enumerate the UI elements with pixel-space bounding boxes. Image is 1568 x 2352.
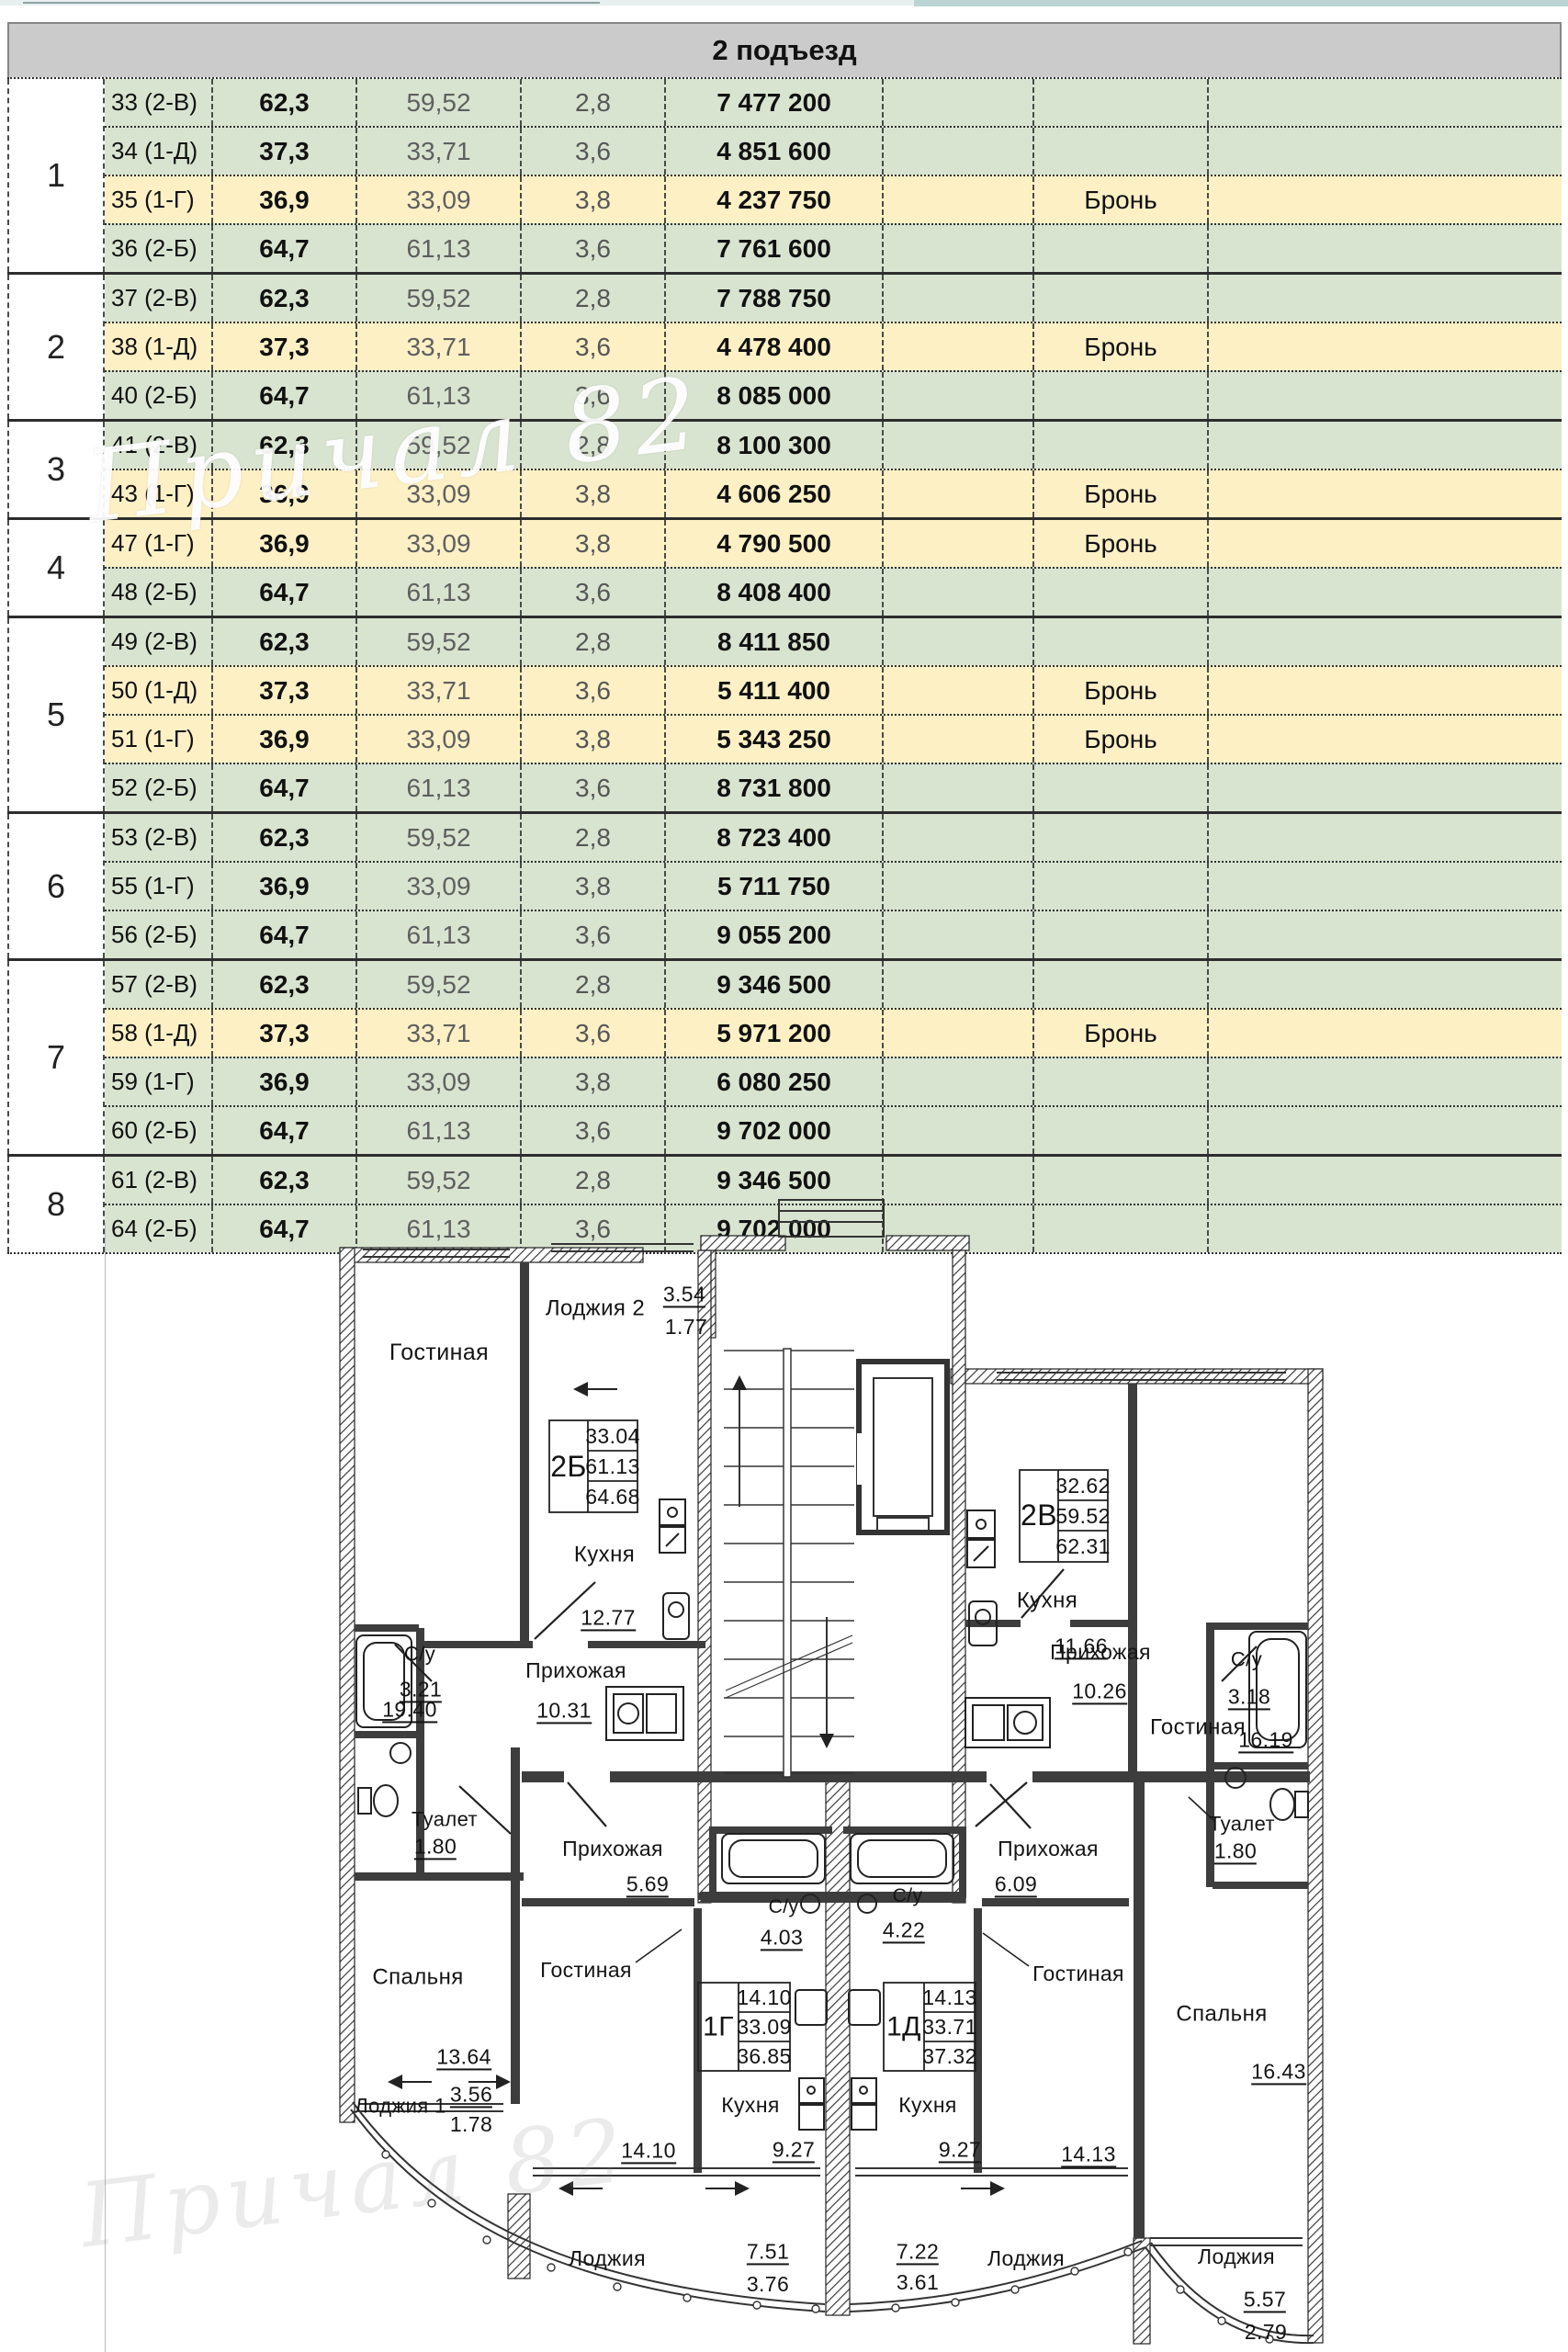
dim-loggia2-a: 3.54: [663, 1283, 705, 1307]
unit-2b-area1: 33.04: [585, 1425, 640, 1447]
dim-bath-1d: 4.22: [883, 1918, 925, 1943]
dim-loggia1-b: 1.78: [450, 2113, 492, 2135]
unit-1d-area2: 33.71: [922, 2016, 977, 2038]
room-wc-2b: Туалет: [412, 1808, 478, 1829]
dim-loggia-1d-a: 7.22: [897, 2240, 939, 2265]
unit-1g-code: 1Г: [703, 2012, 734, 2041]
unit-2v-area3: 62.31: [1055, 1535, 1111, 1557]
dim-kitchen-1d: 9.27: [939, 2138, 981, 2163]
room-kitchen-1d: Кухня: [898, 2094, 957, 2116]
room-bath-1d: С/у: [893, 1886, 923, 1906]
room-loggia-1g: Лоджия: [569, 2247, 646, 2269]
dim-hall-2v: 10.26: [1072, 1679, 1127, 1704]
dim-bedroom-left: 13.64: [436, 2045, 491, 2070]
room-hall-1d: Прихожая: [998, 1837, 1099, 1860]
dim-loggia1-a: 3.56: [450, 2083, 492, 2108]
room-hall-2b: Прихожая: [525, 1659, 626, 1681]
room-hall-2v: Прихожая: [1050, 1641, 1151, 1663]
unit-1g-area1: 14.10: [737, 1986, 792, 2008]
room-living-1g: Гостиная: [540, 1959, 632, 1981]
unit-2v-area1: 32.62: [1055, 1475, 1111, 1497]
room-bedroom-left: Спальня: [372, 1965, 463, 1988]
room-wc-2v: Туалет: [1209, 1813, 1275, 1834]
dim-loggia-1g-a: 7.51: [747, 2240, 789, 2265]
dim-kitchen-1g: 9.27: [773, 2138, 815, 2163]
unit-2b-area2: 61.13: [585, 1455, 640, 1477]
dim-loggia-right-a: 5.57: [1244, 2288, 1286, 2312]
room-bath-2b: С/у: [404, 1643, 435, 1664]
exterior-walls: [340, 1236, 1323, 2344]
room-living-1d: Гостиная: [1032, 1962, 1124, 1984]
room-bedroom-right: Спальня: [1176, 2002, 1267, 2025]
dim-wc-2v: 1.80: [1214, 1839, 1257, 1864]
dim-living-2v: 16.19: [1238, 1728, 1293, 1753]
dim-bedroom-right: 16.43: [1251, 2060, 1306, 2085]
entry-porch: [779, 1200, 884, 1237]
room-living-2b: Гостиная: [389, 1340, 489, 1364]
dim-bath-2v: 3.18: [1228, 1685, 1270, 1710]
dim-hall-1g: 5.69: [626, 1872, 669, 1897]
elevator: [857, 1362, 947, 1532]
dim-loggia-right-b: 2.79: [1245, 2321, 1287, 2343]
room-loggia2: Лоджия 2: [546, 1296, 645, 1319]
room-hall-1g: Прихожая: [562, 1837, 663, 1860]
dim-living-1d: 14.13: [1061, 2143, 1116, 2167]
stairs: [724, 1349, 854, 1777]
unit-2v-area2: 59.52: [1055, 1505, 1111, 1527]
unit-1d-area3: 37.32: [922, 2045, 977, 2067]
room-bath-2v: С/у: [1231, 1648, 1262, 1669]
room-loggia1: Лоджия 1: [355, 2095, 446, 2116]
unit-1d-area1: 14.13: [922, 1986, 977, 2008]
room-kitchen-1g: Кухня: [721, 2094, 780, 2116]
room-kitchen-2v: Кухня: [1017, 1589, 1077, 1611]
dim-living-1g: 14.10: [621, 2139, 676, 2164]
room-bath-1g: С/у: [769, 1897, 799, 1917]
dim-loggia-1d-b: 3.61: [897, 2271, 939, 2293]
unit-2b-code: 2Б: [550, 1452, 587, 1483]
room-loggia-right: Лоджия: [1198, 2245, 1275, 2267]
unit-1d-code: 1Д: [886, 2012, 921, 2041]
unit-2b-area3: 64.68: [585, 1486, 640, 1508]
dim-bath-2b: 3.21: [400, 1678, 442, 1702]
dim-hall-2b: 10.31: [536, 1699, 592, 1724]
kitchen-counters: [606, 1687, 1050, 1747]
dim-hall-1d: 6.09: [995, 1872, 1037, 1897]
dim-bath-1g: 4.03: [761, 1926, 803, 1951]
room-living-2v: Гостиная: [1150, 1715, 1246, 1738]
page: 2 подъезд 133 (2-В)62,359,522,87 477 200…: [0, 0, 1568, 2352]
dim-loggia-1g-b: 3.76: [747, 2273, 789, 2295]
dim-kitchen-2b: 12.77: [581, 1606, 636, 1631]
room-loggia-1d: Лоджия: [987, 2247, 1065, 2269]
unit-1g-area3: 36.85: [737, 2045, 792, 2067]
room-kitchen-2b: Кухня: [574, 1543, 635, 1566]
unit-1g-area2: 33.09: [737, 2016, 792, 2038]
unit-2v-code: 2В: [1021, 1500, 1057, 1532]
dim-wc-2b: 1.80: [414, 1835, 457, 1860]
dim-loggia2-b: 1.77: [665, 1316, 707, 1338]
